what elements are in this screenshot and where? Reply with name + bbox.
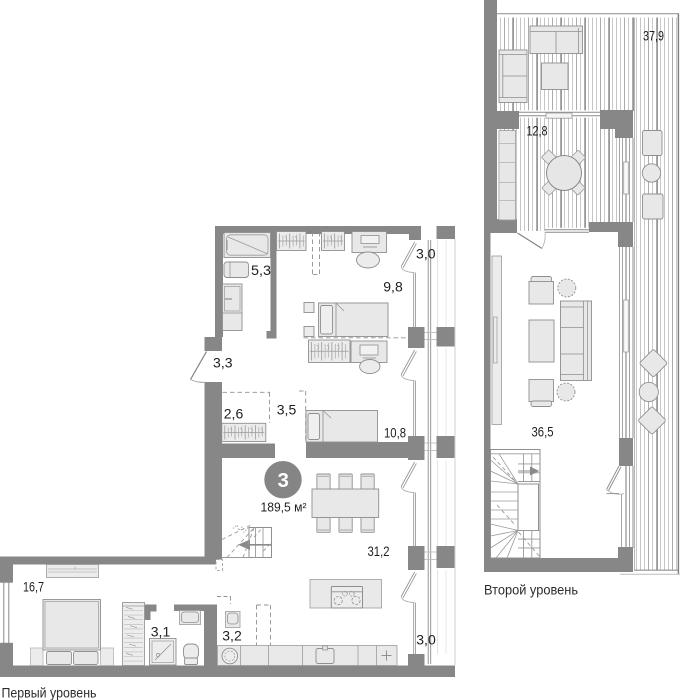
svg-text:36,5: 36,5 [532,425,554,440]
svg-text:Второй уровень: Второй уровень [484,583,578,598]
svg-text:10,8: 10,8 [384,426,406,441]
svg-text:37,9: 37,9 [643,29,664,44]
svg-text:3: 3 [277,469,288,492]
svg-text:Первый уровень: Первый уровень [2,686,97,700]
svg-text:5,3: 5,3 [251,263,271,278]
svg-text:31,2: 31,2 [368,544,390,559]
svg-text:12,8: 12,8 [527,124,548,139]
svg-text:3,0: 3,0 [416,247,436,262]
svg-text:3,3: 3,3 [213,356,233,371]
svg-text:3,1: 3,1 [151,625,171,640]
svg-text:3,2: 3,2 [222,629,242,644]
svg-text:189,5 м²: 189,5 м² [261,501,307,515]
svg-text:16,7: 16,7 [23,580,44,595]
svg-text:9,8: 9,8 [383,280,403,295]
svg-text:2,6: 2,6 [224,407,244,422]
svg-text:3,0: 3,0 [416,633,436,648]
svg-text:3,5: 3,5 [277,403,297,418]
